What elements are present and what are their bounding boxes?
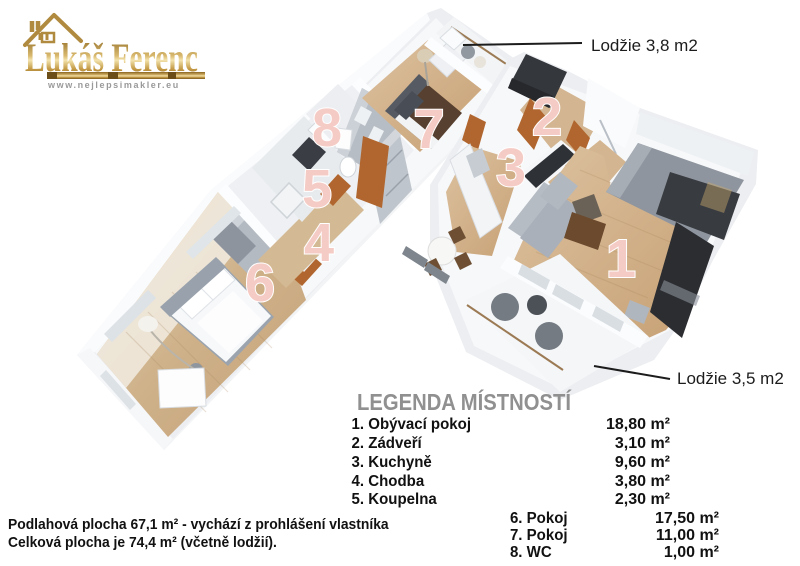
svg-text:1. Obývací pokoj: 1. Obývací pokoj <box>352 416 471 434</box>
svg-text:5: 5 <box>302 159 332 219</box>
svg-text:4: 4 <box>304 213 334 273</box>
svg-text:6. Pokoj: 6. Pokoj <box>510 510 568 528</box>
svg-text:3,80 m²: 3,80 m² <box>615 473 670 490</box>
svg-text:3,10 m²: 3,10 m² <box>615 435 670 452</box>
svg-text:5. Koupelna: 5. Koupelna <box>352 491 438 509</box>
svg-text:Podlahová plocha 67,1 m² - vyc: Podlahová plocha 67,1 m² - vychází z pro… <box>8 517 390 534</box>
svg-text:2. Zádveří: 2. Zádveří <box>352 435 423 453</box>
svg-text:www.nejlepsimakler.eu: www.nejlepsimakler.eu <box>47 80 180 90</box>
svg-text:7. Pokoj: 7. Pokoj <box>510 527 568 545</box>
svg-text:LEGENDA MÍSTNOSTÍ: LEGENDA MÍSTNOSTÍ <box>357 389 572 416</box>
svg-text:7: 7 <box>413 97 444 160</box>
svg-text:3: 3 <box>496 138 526 198</box>
svg-text:Celková plocha je 74,4 m² (vče: Celková plocha je 74,4 m² (včetně lodžií… <box>8 535 277 552</box>
svg-text:Lodžie 3,5 m2: Lodžie 3,5 m2 <box>677 369 784 388</box>
svg-text:6: 6 <box>245 253 275 313</box>
svg-text:3. Kuchyně: 3. Kuchyně <box>352 454 433 472</box>
svg-text:18,80 m²: 18,80 m² <box>606 416 670 433</box>
svg-text:2: 2 <box>532 87 562 147</box>
svg-text:2,30 m²: 2,30 m² <box>615 491 670 508</box>
svg-text:11,00 m²: 11,00 m² <box>656 527 719 544</box>
svg-text:8: 8 <box>312 98 342 158</box>
svg-text:1: 1 <box>606 229 636 289</box>
svg-text:4. Chodba: 4. Chodba <box>352 473 425 491</box>
svg-text:9,60 m²: 9,60 m² <box>615 454 670 471</box>
svg-text:17,50 m²: 17,50 m² <box>655 510 719 527</box>
svg-text:8. WC: 8. WC <box>510 544 552 562</box>
svg-text:Lodžie 3,8 m2: Lodžie 3,8 m2 <box>591 36 698 55</box>
svg-text:1,00 m²: 1,00 m² <box>664 544 719 561</box>
